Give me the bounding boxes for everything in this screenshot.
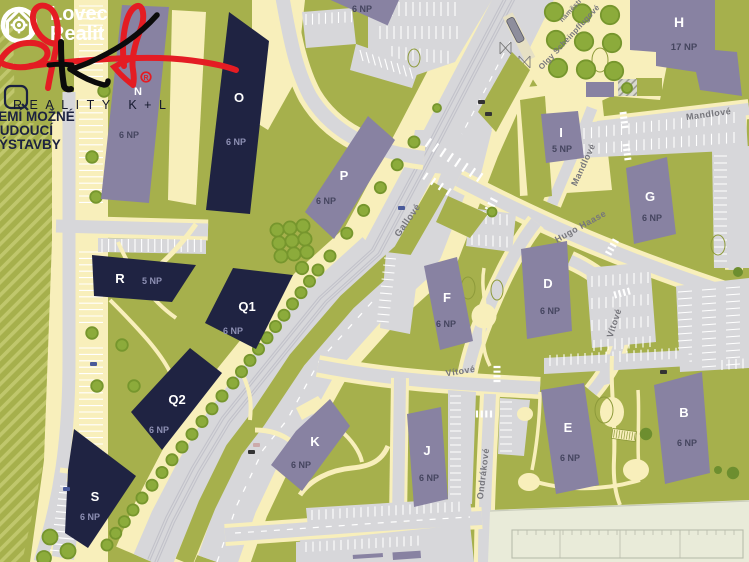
svg-text:S: S: [91, 489, 100, 504]
svg-text:N: N: [134, 86, 142, 98]
svg-text:B: B: [679, 405, 688, 420]
svg-text:R: R: [143, 75, 148, 82]
svg-text:6 NP: 6 NP: [419, 473, 439, 483]
svg-text:5 NP: 5 NP: [552, 144, 572, 154]
svg-text:VÝSTAVBY: VÝSTAVBY: [0, 137, 61, 152]
svg-text:6 NP: 6 NP: [316, 196, 336, 206]
svg-text:6 NP: 6 NP: [223, 326, 243, 336]
svg-text:6 NP: 6 NP: [560, 453, 580, 463]
svg-text:O: O: [234, 90, 244, 105]
svg-text:Q1: Q1: [238, 299, 255, 314]
svg-text:ZEMÍ MOŽNÉ: ZEMÍ MOŽNÉ: [0, 109, 75, 124]
svg-text:J: J: [423, 443, 430, 458]
svg-text:6 NP: 6 NP: [291, 460, 311, 470]
svg-text:6 NP: 6 NP: [677, 438, 697, 448]
svg-text:6 NP: 6 NP: [119, 130, 139, 140]
svg-text:17 NP: 17 NP: [671, 42, 698, 53]
svg-text:D: D: [543, 276, 552, 291]
svg-text:Q2: Q2: [168, 392, 185, 407]
svg-text:6 NP: 6 NP: [436, 319, 456, 329]
svg-text:6 NP: 6 NP: [80, 512, 100, 522]
svg-text:G: G: [645, 189, 655, 204]
svg-text:5 NP: 5 NP: [142, 276, 162, 286]
svg-text:6 NP: 6 NP: [149, 425, 169, 435]
svg-text:6 NP: 6 NP: [226, 137, 246, 147]
svg-text:K: K: [310, 434, 320, 449]
svg-text:P: P: [340, 168, 349, 183]
svg-text:6 NP: 6 NP: [352, 4, 372, 14]
svg-text:H: H: [674, 14, 684, 30]
svg-text:6 NP: 6 NP: [642, 213, 662, 223]
svg-text:R: R: [115, 271, 125, 286]
svg-text:6 NP: 6 NP: [540, 306, 560, 316]
svg-text:I: I: [559, 125, 563, 140]
svg-text:F: F: [443, 290, 451, 305]
svg-text:BUDOUCÍ: BUDOUCÍ: [0, 123, 54, 138]
svg-text:E: E: [564, 420, 573, 435]
